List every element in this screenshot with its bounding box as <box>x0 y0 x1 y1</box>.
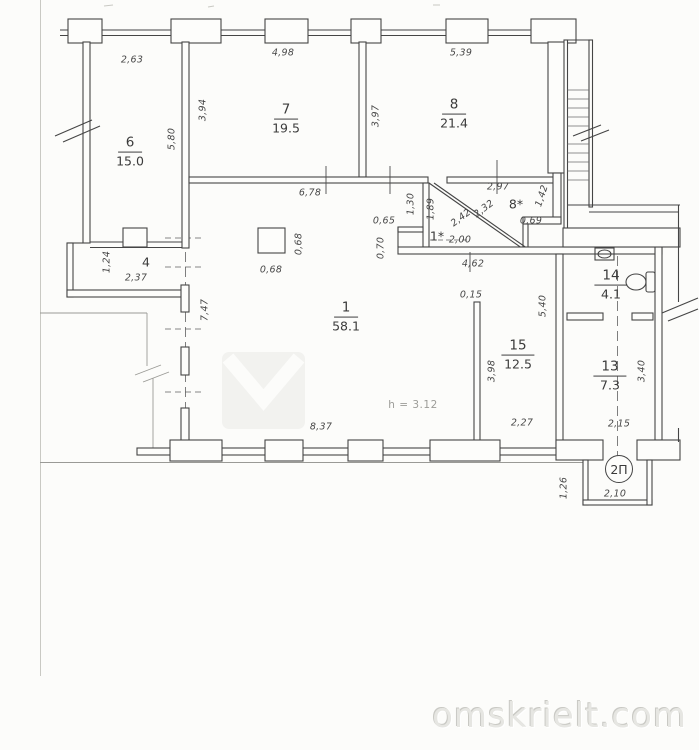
pilaster <box>430 440 500 461</box>
dim-column-side: 0,68 <box>294 233 305 255</box>
room-label-1star: 1* <box>430 229 444 244</box>
dim-1-30: 1,30 <box>406 193 417 215</box>
dim-top-room8: 5,39 <box>450 48 472 59</box>
room-label-15: 15 12.5 <box>501 335 534 372</box>
pilaster <box>171 19 221 43</box>
pilaster <box>531 19 576 43</box>
room-area: 12.5 <box>501 355 534 371</box>
watermark-site-text: omskrielt.com <box>0 696 687 736</box>
dim-room15-bottom: 2,27 <box>511 418 533 429</box>
room-label-13: 13 7.3 <box>593 356 626 393</box>
room-area: 58.1 <box>332 317 360 333</box>
room-area: 4.1 <box>594 285 627 301</box>
dim-2-00: 2,00 <box>449 235 471 246</box>
room-label-7: 7 19.5 <box>272 99 300 136</box>
watermark-logo <box>222 352 305 429</box>
dim-room7-left: 3,94 <box>198 99 209 121</box>
dim-vestibule-left: 1,26 <box>559 477 570 499</box>
break-mark <box>668 309 698 321</box>
pilaster <box>68 19 102 43</box>
room-number: 14 <box>594 269 627 286</box>
dim-hall-left: 7,47 <box>200 299 211 321</box>
dim-corridor: 6,78 <box>299 188 321 199</box>
dim-0-69: 0,69 <box>520 216 542 227</box>
bottom-wall <box>137 440 680 461</box>
dim-room4-width: 2,37 <box>125 273 147 284</box>
dim-right-wall: 5,40 <box>538 295 549 317</box>
hall-piers <box>181 285 189 441</box>
room-label-1: 1 58.1 <box>332 297 360 334</box>
room-area: 15.0 <box>116 152 144 168</box>
dim-0-70: 0,70 <box>376 237 387 259</box>
top-wall <box>60 19 576 43</box>
walls <box>55 19 698 505</box>
stair-steps <box>568 90 590 180</box>
toilet-tank-icon <box>646 272 655 292</box>
left-wall <box>55 42 100 297</box>
room-label-4: 4 <box>142 255 150 270</box>
room-label-6: 6 15.0 <box>116 132 144 169</box>
staircase <box>563 40 680 247</box>
room-label-8: 8 21.4 <box>440 94 468 131</box>
break-mark <box>63 126 100 142</box>
dim-thin-wall: 0,15 <box>460 290 482 301</box>
dim-hall-bottom: 8,37 <box>310 422 332 433</box>
dim-wall15-length: 3,98 <box>487 360 498 382</box>
dim-8star-top: 2,97 <box>487 182 509 193</box>
dim-room13-bottom: 2,15 <box>608 419 630 430</box>
pilaster <box>170 440 222 461</box>
pilaster <box>446 19 488 43</box>
column <box>258 228 285 253</box>
room-area: 21.4 <box>440 114 468 130</box>
dim-0-65: 0,65 <box>373 216 395 227</box>
pilaster <box>265 440 303 461</box>
dim-room6-right: 5,80 <box>167 128 178 150</box>
wall-room15 <box>474 302 480 448</box>
dim-vestibule-width: 2,10 <box>604 489 626 500</box>
dim-top-room6: 2,63 <box>121 55 143 66</box>
dim-4-62: 4,62 <box>462 259 484 270</box>
room-label-14: 14 4.1 <box>594 265 627 302</box>
right-wall-room8 <box>548 42 566 173</box>
room-number: 15 <box>501 339 534 356</box>
dim-room4-left: 1,24 <box>102 251 113 273</box>
dim-room13-right: 3,40 <box>637 360 648 382</box>
floorplan-page: 1 58.1 6 15.0 7 19.5 8 21.4 15 12.5 14 4… <box>0 0 699 750</box>
room-number: 7 <box>274 103 299 120</box>
wall-room6-room7 <box>182 42 189 248</box>
entrance-label: 2П <box>610 462 627 477</box>
ceiling-height-note: h = 3.12 <box>388 399 438 411</box>
dim-top-room7: 4,98 <box>272 48 294 59</box>
dim-column-bottom: 0,68 <box>260 265 282 276</box>
dim-room8-left: 3,97 <box>371 105 382 127</box>
scan-edge-lines <box>41 0 441 676</box>
pilaster <box>265 19 308 43</box>
wall-room7-room8 <box>359 42 366 177</box>
room-number: 6 <box>118 136 143 153</box>
dim-1-89: 1,89 <box>426 198 437 220</box>
room-label-8star: 8* <box>509 197 523 212</box>
south-corridor-wall <box>398 247 662 254</box>
room-number: 1 <box>334 301 359 318</box>
room-area: 19.5 <box>272 119 300 135</box>
entrance-marker: 2П <box>605 455 633 483</box>
toilet-icon <box>626 274 646 290</box>
pilaster <box>348 440 383 461</box>
pilaster <box>351 19 381 43</box>
room-area: 7.3 <box>593 376 626 392</box>
corridor-wall-left <box>189 177 428 183</box>
room-number: 8 <box>442 98 467 115</box>
room-number: 13 <box>593 360 626 377</box>
